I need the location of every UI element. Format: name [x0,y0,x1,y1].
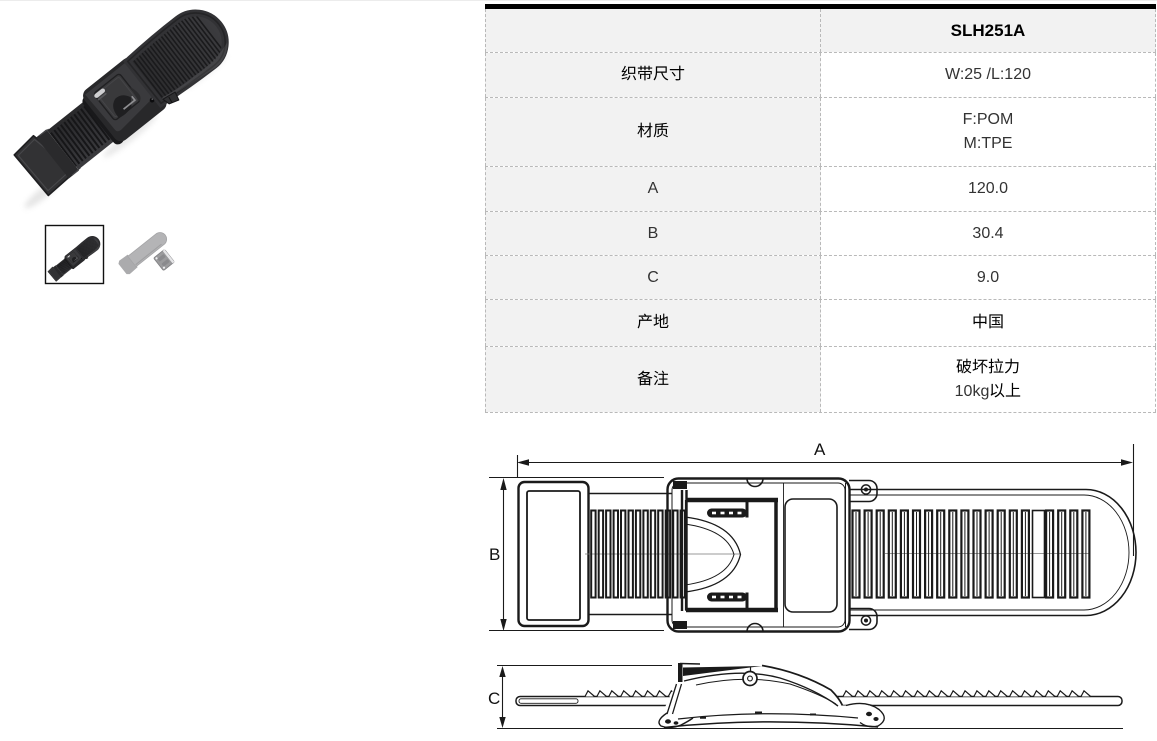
svg-text:C: C [488,689,500,708]
svg-text:B: B [489,545,500,564]
svg-text:A: A [814,440,826,459]
